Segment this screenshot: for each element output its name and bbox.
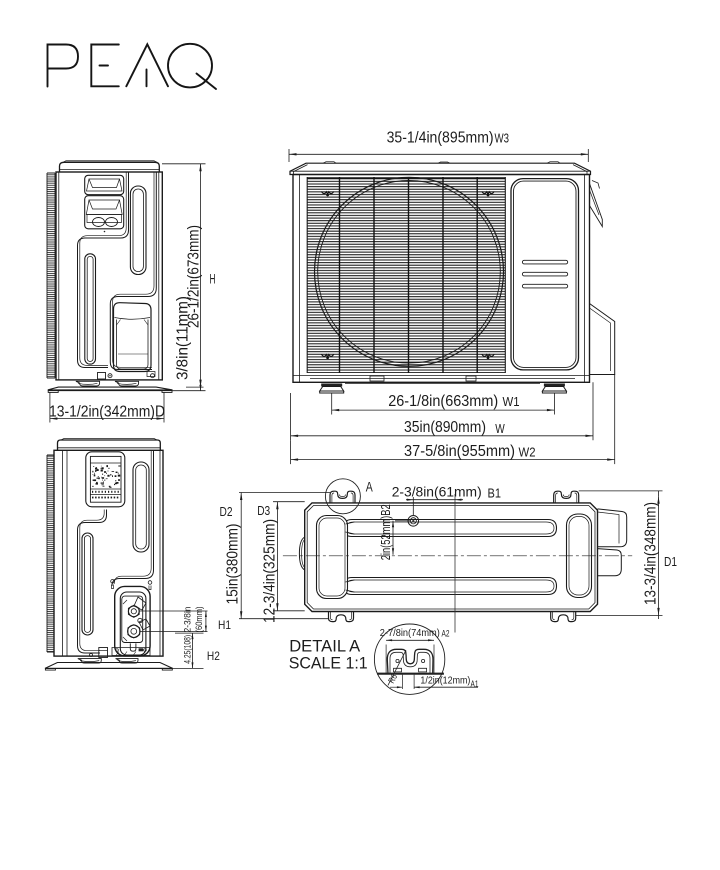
svg-text:D1: D1 bbox=[664, 554, 677, 569]
svg-text:D3: D3 bbox=[257, 503, 270, 518]
svg-text:2-3/8in: 2-3/8in bbox=[183, 607, 193, 633]
svg-text:2-7/8in(74mm): 2-7/8in(74mm) bbox=[380, 627, 440, 639]
svg-text:26-1/8in(663mm): 26-1/8in(663mm) bbox=[388, 393, 498, 410]
svg-text:2-3/8in(61mm): 2-3/8in(61mm) bbox=[392, 484, 482, 500]
svg-text:2in(52mm)B2: 2in(52mm)B2 bbox=[379, 504, 393, 560]
svg-text:12-3/4in(325mm): 12-3/4in(325mm) bbox=[262, 519, 279, 623]
svg-text:W2: W2 bbox=[519, 444, 536, 459]
svg-text:A1: A1 bbox=[471, 679, 479, 690]
svg-text:35in(890mm): 35in(890mm) bbox=[404, 419, 486, 436]
svg-text:A: A bbox=[366, 479, 373, 494]
svg-text:D2: D2 bbox=[220, 504, 233, 519]
svg-text:37-5/8in(955mm): 37-5/8in(955mm) bbox=[404, 443, 515, 460]
svg-text:3/8in(11mm): 3/8in(11mm) bbox=[174, 296, 191, 380]
svg-text:13-1/2in(342mm)D: 13-1/2in(342mm)D bbox=[49, 403, 165, 420]
svg-text:W: W bbox=[495, 421, 505, 436]
svg-text:H2: H2 bbox=[207, 649, 220, 663]
svg-text:A2: A2 bbox=[442, 628, 450, 639]
svg-text:(60mm): (60mm) bbox=[194, 606, 204, 632]
svg-text:13-3/4in(348mm): 13-3/4in(348mm) bbox=[642, 502, 659, 605]
svg-text:W1: W1 bbox=[503, 394, 520, 409]
svg-text:1/2in(12mm): 1/2in(12mm) bbox=[420, 675, 470, 687]
svg-text:W3: W3 bbox=[495, 130, 510, 145]
svg-text:35-1/4in(895mm): 35-1/4in(895mm) bbox=[387, 129, 494, 146]
svg-text:B1: B1 bbox=[488, 486, 502, 501]
svg-text:SCALE 1:1: SCALE 1:1 bbox=[289, 653, 368, 672]
svg-text:15in(380mm): 15in(380mm) bbox=[224, 524, 241, 605]
svg-text:H1: H1 bbox=[218, 618, 231, 632]
svg-text:H: H bbox=[210, 271, 216, 286]
svg-text:4.25(108): 4.25(108) bbox=[183, 635, 194, 664]
